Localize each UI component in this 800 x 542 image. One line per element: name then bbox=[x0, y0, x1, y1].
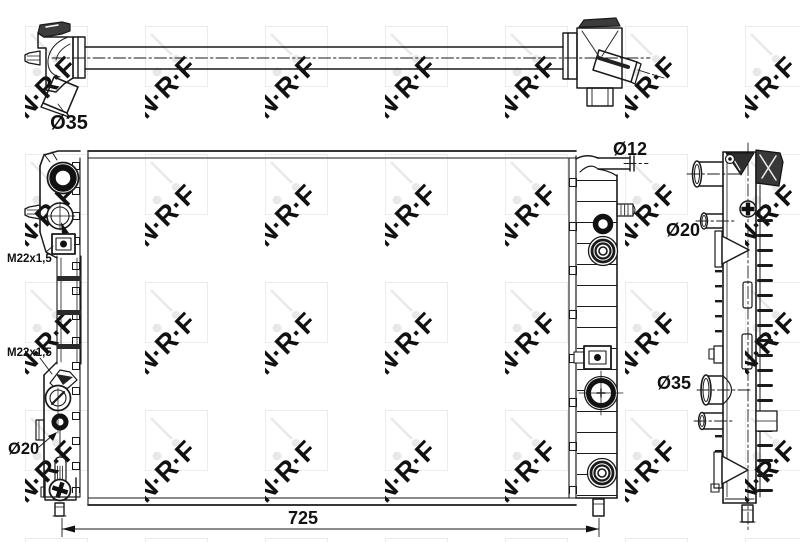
top-corner-bracket bbox=[756, 150, 783, 186]
bracket-top-plate-right bbox=[579, 18, 620, 27]
sensor-boss-upper bbox=[52, 234, 75, 254]
drain-plug bbox=[588, 459, 617, 488]
label-side-upper-port-diameter: Ø20 bbox=[666, 220, 700, 240]
label-left-lower-port-diameter: Ø20 bbox=[8, 440, 39, 458]
technical-drawing-page: N·R·F bbox=[0, 0, 800, 542]
label-top-hose-diameter: Ø35 bbox=[50, 112, 88, 134]
label-thread-spec-lower: M22x1,5 bbox=[7, 347, 52, 359]
label-side-lower-port-diameter: Ø35 bbox=[657, 373, 691, 393]
inlet-port-ring bbox=[48, 163, 79, 194]
nrf-watermark bbox=[0, 0, 800, 542]
lower-port-ring bbox=[54, 416, 66, 428]
radiator-technical-drawing: N·R·F bbox=[0, 0, 800, 542]
grommet-ring bbox=[596, 217, 611, 232]
phillips-screw-side bbox=[740, 201, 756, 217]
right-bracket-lower bbox=[756, 411, 777, 431]
filler-neck bbox=[589, 237, 618, 266]
label-thread-spec-upper: M22x1,5 bbox=[7, 253, 52, 265]
label-core-width-dimension: 725 bbox=[288, 508, 318, 528]
label-bleed-pipe-diameter: Ø12 bbox=[613, 139, 647, 159]
cooling-fins bbox=[757, 214, 774, 496]
